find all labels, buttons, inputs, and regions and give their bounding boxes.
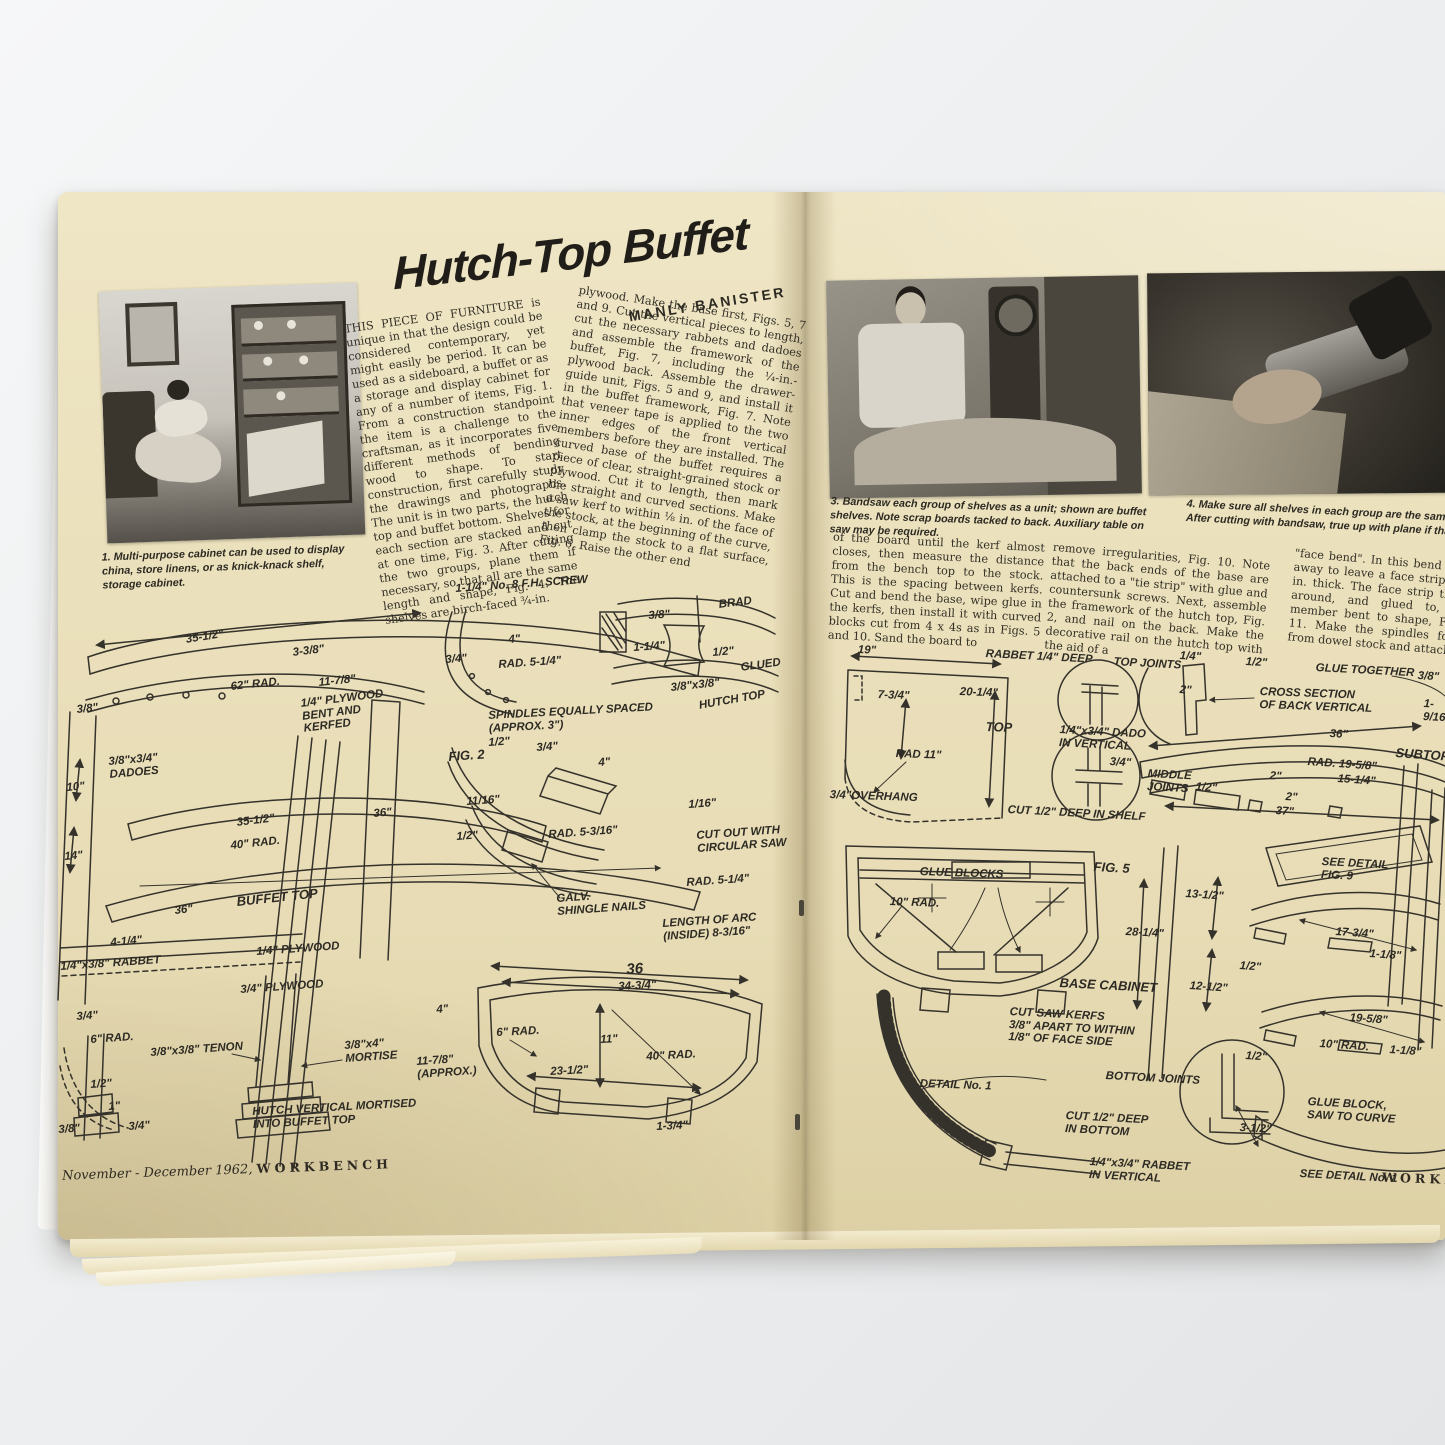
diagram-line-art [0, 0, 1445, 1445]
magazine-photo: Hutch-Top Buffet MANLY BANISTER THIS PIE… [0, 0, 1445, 1445]
